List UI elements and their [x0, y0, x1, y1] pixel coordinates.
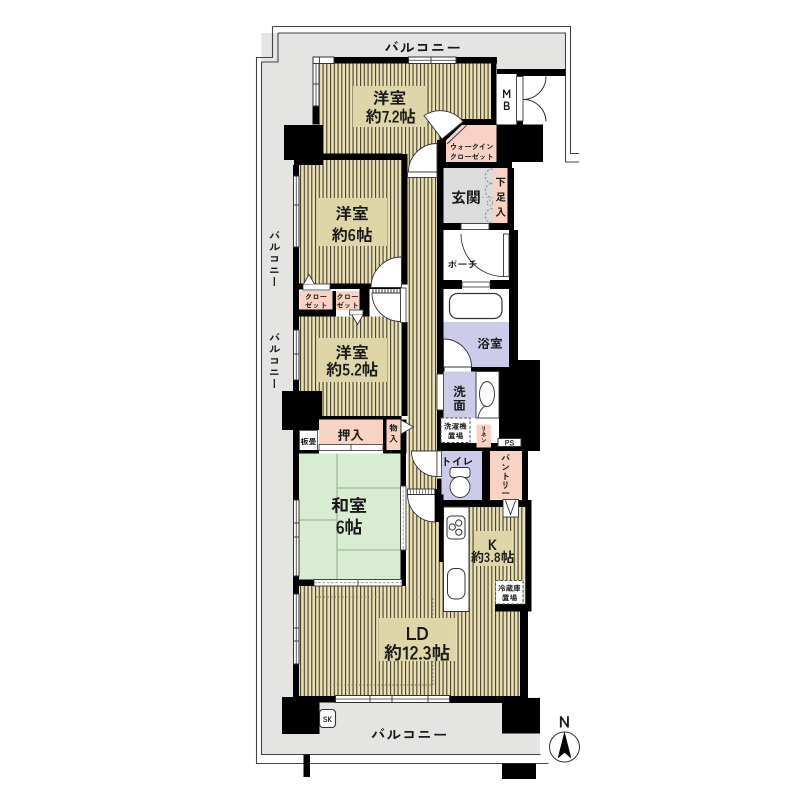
- svg-text:洋室: 洋室: [336, 201, 369, 225]
- svg-text:バルコニー: バルコニー: [267, 229, 283, 287]
- svg-text:約5.2帖: 約5.2帖: [326, 357, 378, 381]
- svg-text:ン: ン: [481, 435, 487, 444]
- svg-text:押入: 押入: [337, 425, 363, 444]
- svg-text:SK: SK: [323, 714, 333, 725]
- svg-text:浴室: 浴室: [477, 333, 502, 352]
- svg-text:N: N: [559, 709, 570, 733]
- svg-text:約6帖: 約6帖: [331, 222, 372, 246]
- svg-text:PS: PS: [505, 438, 515, 449]
- svg-text:約3.8帖: 約3.8帖: [471, 546, 515, 566]
- svg-text:置場: 置場: [448, 431, 463, 442]
- svg-text:ー: ー: [501, 487, 510, 500]
- svg-text:約7.2帖: 約7.2帖: [365, 104, 416, 128]
- svg-text:バルコニー: バルコニー: [267, 331, 283, 389]
- svg-text:クローゼット: クローゼット: [450, 152, 494, 163]
- svg-text:足: 足: [496, 190, 507, 205]
- svg-text:入: 入: [389, 433, 398, 445]
- svg-text:ゼット: ゼット: [336, 300, 359, 311]
- svg-text:6帖: 6帖: [336, 514, 363, 540]
- svg-text:置場: 置場: [502, 593, 517, 604]
- svg-text:B: B: [503, 98, 511, 114]
- svg-text:ポーチ: ポーチ: [448, 256, 478, 271]
- svg-text:ゼット: ゼット: [305, 300, 328, 311]
- svg-text:玄関: 玄関: [451, 187, 481, 208]
- svg-text:下: 下: [496, 175, 507, 190]
- svg-text:バルコニー: バルコニー: [384, 37, 462, 58]
- svg-text:約12.3帖: 約12.3帖: [384, 640, 451, 666]
- svg-text:入: 入: [496, 205, 507, 220]
- svg-text:板畳: 板畳: [300, 437, 317, 448]
- svg-text:面: 面: [453, 395, 466, 414]
- svg-text:バルコニー: バルコニー: [371, 724, 449, 745]
